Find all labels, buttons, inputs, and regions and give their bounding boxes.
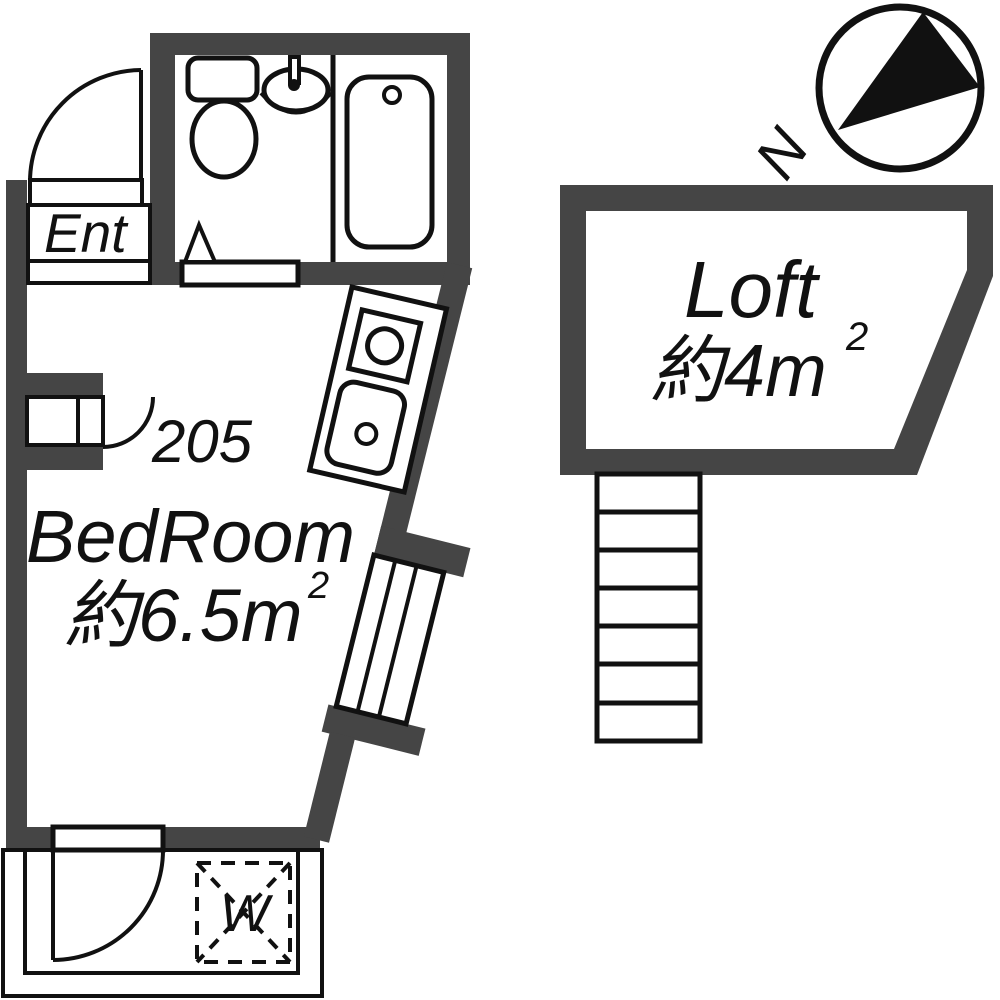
toilet-tank	[188, 58, 257, 100]
loft-area-label: 約4m	[650, 329, 827, 412]
floorplan-page: N W Ent	[0, 0, 1000, 1000]
room-number: 205	[151, 408, 253, 475]
bedroom-label: BedRoom	[26, 495, 355, 578]
loft-label: Loft	[684, 245, 820, 334]
floorplan-canvas: N W Ent	[0, 0, 1000, 1000]
north-label: N	[742, 116, 822, 190]
kitchen-sink-drain-icon	[354, 422, 378, 446]
bedroom-area-superscript: 2	[307, 565, 329, 607]
bathtub-drain-icon	[384, 87, 400, 103]
bathroom-door-step	[182, 262, 298, 285]
bedroom-area-label: 約6.5m	[64, 574, 303, 657]
stairs	[597, 474, 700, 741]
compass: N	[742, 7, 981, 190]
toilet-bowl	[192, 101, 256, 177]
closet-door-arc	[103, 397, 153, 447]
closet-opening	[27, 397, 103, 445]
wall-slant-lower	[304, 732, 355, 843]
loft-area-superscript: 2	[845, 315, 868, 359]
entrance-door-arc	[30, 70, 141, 182]
entrance-label: Ent	[44, 202, 129, 264]
kitchen-unit	[310, 287, 447, 492]
washer-label: W	[220, 885, 274, 943]
faucet-spout-icon	[288, 79, 300, 91]
wall-left	[6, 180, 27, 850]
entrance-step	[28, 261, 150, 283]
balcony-door-opening	[53, 827, 163, 850]
